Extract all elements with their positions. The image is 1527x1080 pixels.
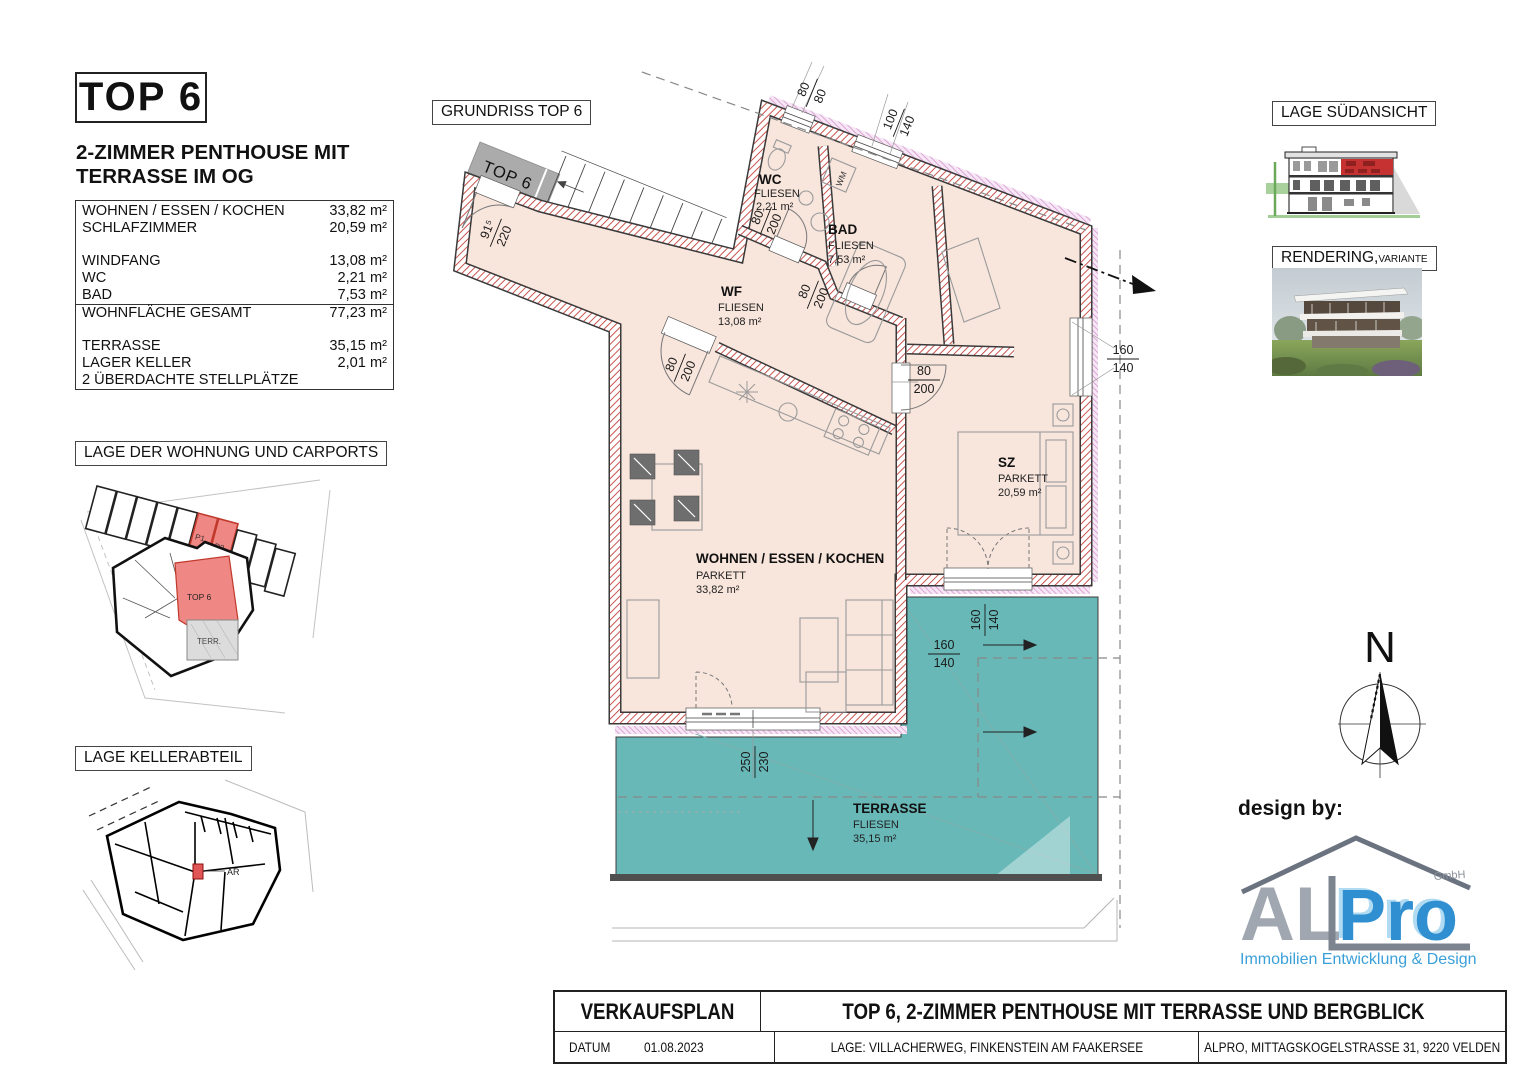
kitchen-star-icon xyxy=(736,381,758,403)
logo-pro: Pro xyxy=(1338,876,1458,956)
location-cell: LAGE: VILLACHERWEG, FINKENSTEIN AM FAAKE… xyxy=(775,1032,1199,1062)
svg-text:230: 230 xyxy=(757,752,771,773)
unit-subtitle-line1: 2-ZIMMER PENTHOUSE MIT xyxy=(76,141,349,165)
svg-text:FLIESEN: FLIESEN xyxy=(718,302,764,314)
unit-title-box: TOP 6 xyxy=(75,72,207,123)
svg-text:200: 200 xyxy=(914,382,935,396)
svg-text:35,15 m²: 35,15 m² xyxy=(853,833,897,845)
floor-plan: TOP 6 xyxy=(420,60,1160,960)
svg-text:140: 140 xyxy=(897,114,918,139)
section-arrow-icon xyxy=(1132,275,1156,294)
svg-text:SZ: SZ xyxy=(998,455,1015,470)
table-row: WOHNEN / ESSEN / KOCHEN33,82 m² xyxy=(82,203,387,220)
dim-label: 160140 xyxy=(1107,343,1139,375)
svg-text:BAD: BAD xyxy=(828,222,857,237)
svg-text:13,08 m²: 13,08 m² xyxy=(718,316,762,328)
shadow xyxy=(1394,168,1420,214)
svg-text:160: 160 xyxy=(934,638,955,652)
svg-text:PARKETT: PARKETT xyxy=(998,473,1048,485)
table-row: BAD7,53 m² xyxy=(76,287,393,305)
svg-text:WF: WF xyxy=(721,284,742,299)
title-block: VERKAUFSPLAN TOP 6, 2-ZIMMER PENTHOUSE M… xyxy=(553,990,1507,1064)
svg-text:80: 80 xyxy=(811,87,829,105)
terrace-edge xyxy=(610,874,1102,881)
keller-ar-label: AR xyxy=(227,867,240,877)
doc-type-cell: VERKAUFSPLAN xyxy=(555,992,761,1031)
svg-text:WC: WC xyxy=(759,172,782,187)
table-row xyxy=(82,237,387,254)
svg-text:FLIESEN: FLIESEN xyxy=(853,819,899,831)
svg-text:160: 160 xyxy=(1113,343,1134,357)
table-row: LAGER KELLER2,01 m² xyxy=(82,355,387,372)
svg-text:FLIESEN: FLIESEN xyxy=(754,188,800,200)
date-value: 01.08.2023 xyxy=(644,1039,704,1055)
keller-storage-highlight xyxy=(193,864,203,879)
compass-n-label: N xyxy=(1364,623,1396,672)
rendering-image xyxy=(1272,268,1422,376)
dim-label: 100140 xyxy=(878,103,919,143)
sheet-title-cell: TOP 6, 2-ZIMMER PENTHOUSE MIT TERRASSE U… xyxy=(761,992,1505,1031)
table-row: WC2,21 m² xyxy=(82,270,387,287)
roof-slab xyxy=(1285,152,1397,158)
verkaufsplan-sheet: TOP 6 2-ZIMMER PENTHOUSE MIT TERRASSE IM… xyxy=(0,0,1527,1080)
site-plan-drawing: P1 P2 TOP 6 TERR. xyxy=(75,468,355,718)
unit-subtitle: 2-ZIMMER PENTHOUSE MIT TERRASSE IM OG xyxy=(76,141,349,189)
room-area-table: WOHNEN / ESSEN / KOCHEN33,82 m² SCHLAFZI… xyxy=(75,200,394,390)
svg-text:FLIESEN: FLIESEN xyxy=(828,240,874,252)
table-row: TERRASSE35,15 m² xyxy=(82,338,387,355)
svg-text:140: 140 xyxy=(987,610,1001,631)
alpro-logo: GmbH AL Pro Pro Immobilien Entwicklung &… xyxy=(1238,828,1478,968)
table-row: SCHLAFZIMMER20,59 m² xyxy=(82,220,387,237)
logo-tagline: Immobilien Entwicklung & Design xyxy=(1240,951,1477,968)
svg-text:140: 140 xyxy=(1113,361,1134,375)
svg-text:33,82 m²: 33,82 m² xyxy=(696,584,740,596)
svg-text:80: 80 xyxy=(917,364,931,378)
keller-plan-drawing: AR xyxy=(75,772,330,972)
north-compass: N xyxy=(1338,622,1430,784)
svg-text:140: 140 xyxy=(934,656,955,670)
svg-text:PARKETT: PARKETT xyxy=(696,570,746,582)
svg-text:20,59 m²: 20,59 m² xyxy=(998,487,1042,499)
south-elevation-drawing xyxy=(1266,136,1431,234)
site-plan-label: LAGE DER WOHNUNG UND CARPORTS xyxy=(75,441,387,466)
keller-plan-label: LAGE KELLERABTEIL xyxy=(75,746,252,771)
company-cell: ALPRO, MITTAGSKOGELSTRASSE 31, 9220 VELD… xyxy=(1199,1032,1505,1062)
svg-text:WOHNEN / ESSEN / KOCHEN: WOHNEN / ESSEN / KOCHEN xyxy=(696,551,884,566)
table-row xyxy=(82,322,387,339)
table-row: 2 ÜBERDACHTE STELLPLÄTZE xyxy=(82,372,387,389)
logo-al: AL xyxy=(1240,872,1341,957)
unit-title: TOP 6 xyxy=(79,75,203,120)
site-top6-label: TOP 6 xyxy=(187,592,212,602)
lower-floor-outline xyxy=(612,898,1117,941)
svg-text:TERRASSE: TERRASSE xyxy=(853,801,927,816)
svg-text:7,53 m²: 7,53 m² xyxy=(828,254,866,266)
site-terr-label: TERR. xyxy=(197,637,221,646)
suedansicht-label: LAGE SÜDANSICHT xyxy=(1272,101,1436,126)
svg-text:250: 250 xyxy=(739,752,753,773)
date-cell: DATUM 01.08.2023 xyxy=(555,1032,775,1062)
svg-text:2,21 m²: 2,21 m² xyxy=(756,201,794,213)
ground-line xyxy=(1268,215,1420,218)
svg-text:100: 100 xyxy=(880,107,901,132)
table-row: WOHNFLÄCHE GESAMT77,23 m² xyxy=(82,305,387,322)
unit-subtitle-line2: TERRASSE IM OG xyxy=(76,165,349,189)
table-row: WINDFANG13,08 m² xyxy=(82,253,387,270)
design-by-text: design by: xyxy=(1238,797,1343,821)
svg-text:160: 160 xyxy=(969,610,983,631)
